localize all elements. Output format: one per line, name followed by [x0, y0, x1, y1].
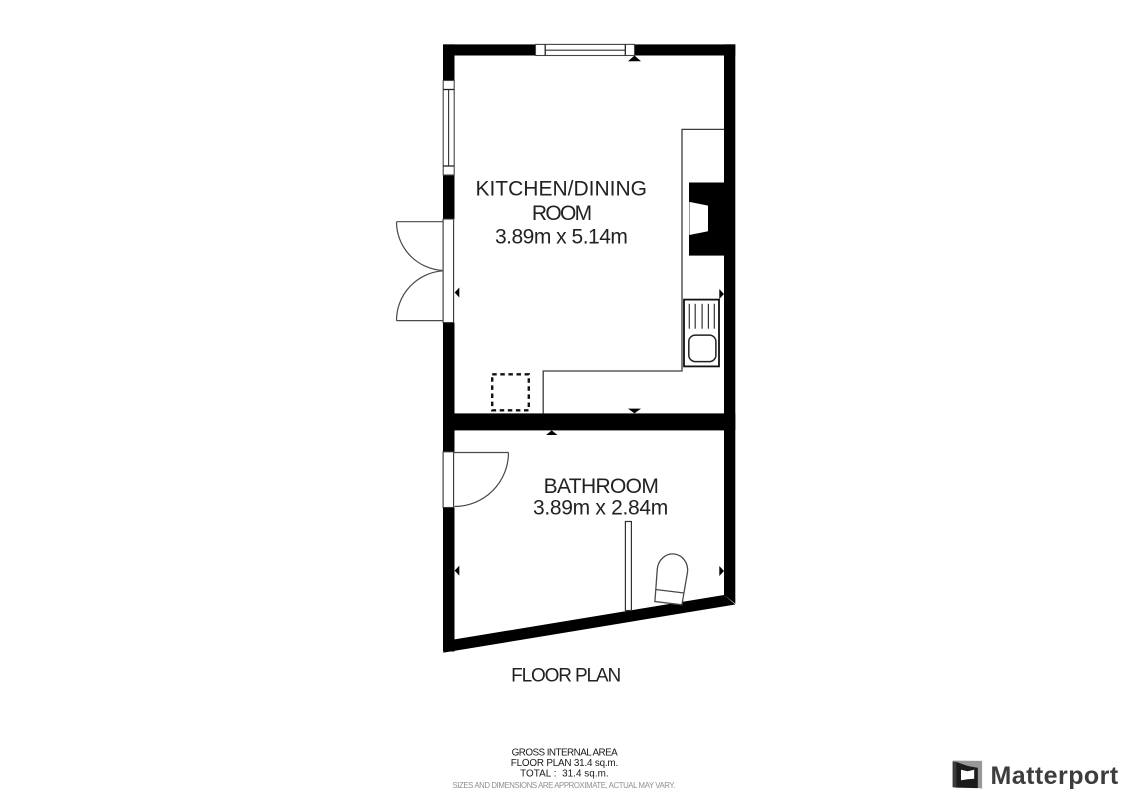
svg-text:GROSS INTERNAL AREA: GROSS INTERNAL AREA	[512, 747, 618, 758]
svg-text:3.89m x 5.14m: 3.89m x 5.14m	[495, 225, 627, 248]
svg-text:ROOM: ROOM	[532, 202, 591, 225]
svg-text:FLOOR PLAN 31.4 sq.m.: FLOOR PLAN 31.4 sq.m.	[511, 758, 618, 769]
svg-text:FLOOR PLAN: FLOOR PLAN	[511, 666, 620, 687]
svg-text:SIZES AND DIMENSIONS ARE APPRO: SIZES AND DIMENSIONS ARE APPROXIMATE, AC…	[452, 781, 675, 790]
svg-text:BATHROOM: BATHROOM	[544, 475, 659, 498]
svg-text:KITCHEN/DINING: KITCHEN/DINING	[475, 178, 647, 201]
svg-text:3.89m x 2.84m: 3.89m x 2.84m	[533, 497, 668, 520]
svg-text:TOTAL : 31.4 sq.m.: TOTAL : 31.4 sq.m.	[520, 769, 609, 780]
svg-text:Matterport: Matterport	[991, 762, 1119, 790]
